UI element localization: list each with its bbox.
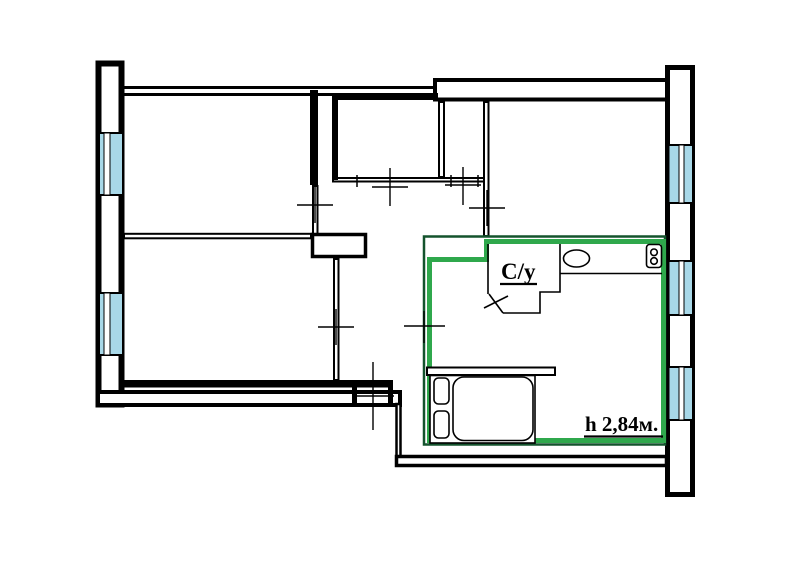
window-frame (104, 293, 110, 355)
entrance-door-jamb-right (388, 380, 393, 404)
partition-topright-room-left (484, 102, 489, 236)
window-frame (104, 133, 110, 195)
stove-burner (651, 249, 658, 256)
window-frame (679, 145, 684, 203)
floor-plan-page: С/у h 2,84м. (0, 0, 800, 583)
window-glass (99, 293, 123, 355)
window-icon (669, 145, 694, 203)
wall-segment-bottom-right (397, 457, 667, 466)
window-icon (669, 261, 694, 315)
bed-pillow (434, 378, 449, 404)
bathroom-label: С/у (501, 259, 536, 284)
wall-storage-top (332, 93, 438, 100)
window-frame (679, 261, 684, 315)
stove-icon (647, 245, 662, 268)
wall-segment-step (397, 404, 401, 457)
bed-mattress (453, 377, 533, 441)
wall-storage-left (332, 93, 338, 180)
bed-icon (427, 368, 555, 444)
window-icon (99, 293, 123, 355)
bed-pillow (434, 411, 449, 438)
stove-burner (651, 258, 658, 265)
ceiling-height-note: h 2,84м. (584, 412, 663, 437)
window-icon (669, 367, 694, 420)
wall-segment-top-bar (435, 80, 667, 100)
partition-closet-left (439, 102, 444, 177)
sink-icon (564, 250, 590, 267)
bed-headboard-wall (427, 368, 555, 376)
window-glass (99, 133, 123, 195)
ceiling-height-label: h 2,84м. (585, 412, 658, 436)
wall-pier-block (313, 235, 366, 257)
window-frame (679, 367, 684, 420)
floor-plan-canvas: С/у h 2,84м. (0, 0, 800, 583)
window-icon (99, 133, 123, 195)
wall-topleft-room-right (310, 90, 318, 185)
partition-topleft-room-bottom (124, 234, 311, 239)
entrance-door-jamb-left (352, 380, 357, 404)
